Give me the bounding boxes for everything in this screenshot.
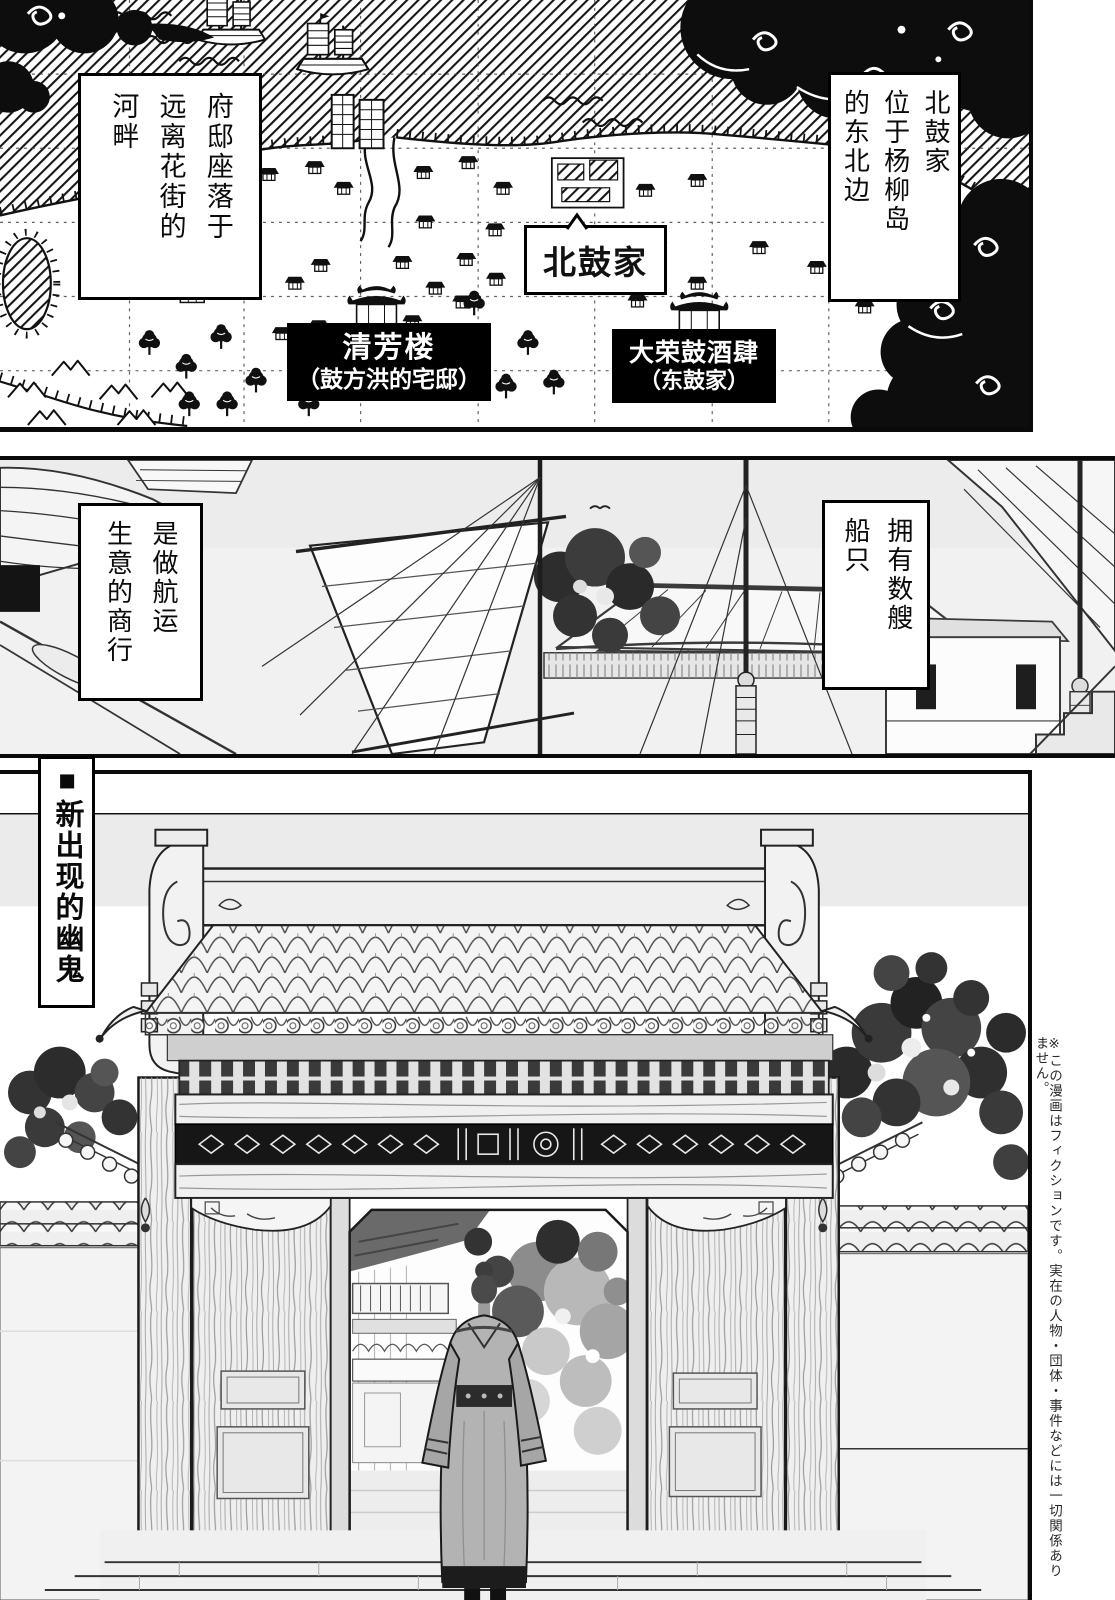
disclaimer-text: ※この漫画はフィクションです。実在の人物・団体・事件などには一切関係ありません。 <box>1034 1036 1061 1588</box>
door-frame-right <box>628 1198 647 1550</box>
roof-ridge <box>189 869 779 926</box>
upper-beam <box>175 1094 832 1124</box>
label-text: 北鼓家 <box>543 236 648 284</box>
map-label-north-drum: 北鼓家 <box>524 225 667 295</box>
speech-text: 拥有数艘 船只 <box>833 517 919 673</box>
map-label-qingfang: 清芳楼 （鼓方洪的宅邸） <box>287 323 491 401</box>
speech-text: 府邸座落于 远离花街的 河畔 <box>99 92 241 281</box>
side-title-text: ■新出现的幽鬼 <box>52 765 81 1005</box>
label-line1: 清芳楼 <box>342 331 435 366</box>
map-compound-north-drum <box>552 158 624 207</box>
speech-bubble-residence: 府邸座落于 远离花街的 河畔 <box>78 73 262 300</box>
speech-text: 是做航运 生意的商行 <box>95 520 186 684</box>
eave-shadow <box>167 1035 832 1061</box>
speech-bubble-ships: 拥有数艘 船只 <box>822 500 930 690</box>
speech-bubble-location: 北鼓家 位于杨柳岛 的东北边 <box>828 72 961 302</box>
pendant-right <box>818 1198 827 1232</box>
label-line2: （鼓方洪的宅邸） <box>297 366 481 394</box>
door-right <box>647 1198 784 1550</box>
chapter-side-title: ■新出现的幽鬼 <box>38 756 95 1008</box>
door-frame-left <box>331 1198 350 1550</box>
carved-frieze <box>175 1124 832 1164</box>
manga-page: 府邸座落于 远离花街的 河畔 北鼓家 位于杨柳岛 的东北边 北鼓家 清芳楼 （鼓… <box>0 0 1115 1600</box>
gate-illustration <box>0 774 1028 1600</box>
pendant-left <box>141 1198 150 1232</box>
speech-bubble-business: 是做航运 生意的商行 <box>78 503 203 701</box>
label-line2: （东鼓家） <box>639 368 749 394</box>
label-pointer-icon <box>567 214 587 229</box>
lower-beam <box>175 1164 832 1198</box>
map-label-darong: 大荣鼓酒肆 （东鼓家） <box>612 329 776 403</box>
label-line1: 大荣鼓酒肆 <box>629 338 759 368</box>
rafter-row <box>179 1061 828 1095</box>
speech-text: 北鼓家 位于杨柳岛 的东北边 <box>834 89 955 285</box>
door-left <box>193 1198 330 1550</box>
panel-gate <box>0 770 1032 1600</box>
fiction-disclaimer: ※この漫画はフィクションです。実在の人物・団体・事件などには一切関係ありません。 <box>1034 1036 1058 1588</box>
eave-tiles <box>145 1013 822 1035</box>
